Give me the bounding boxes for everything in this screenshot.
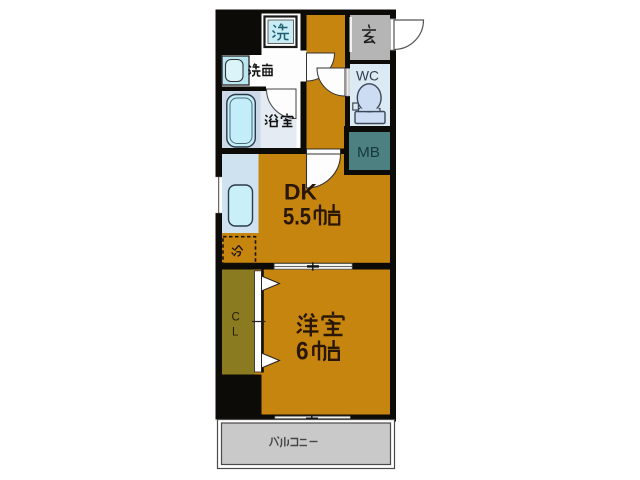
svg-text:5.5: 5.5 xyxy=(283,204,311,231)
svg-text:WC: WC xyxy=(356,68,379,84)
svg-text:MB: MB xyxy=(357,144,380,161)
svg-text:6: 6 xyxy=(296,338,309,366)
svg-text:C: C xyxy=(232,312,240,324)
svg-text:DK: DK xyxy=(284,180,317,205)
svg-text:L: L xyxy=(232,327,239,339)
